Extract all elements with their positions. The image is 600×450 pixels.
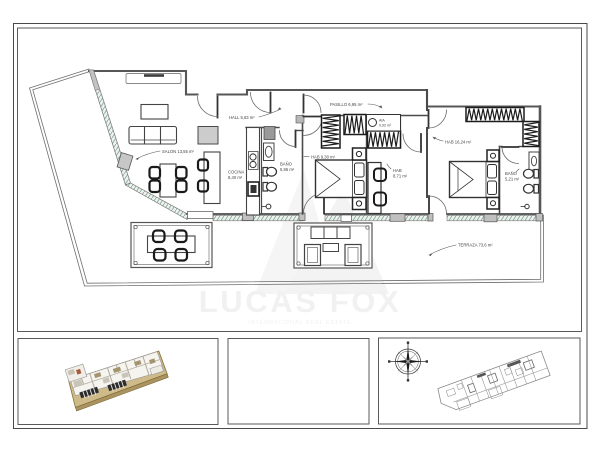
svg-text:5,21 m²: 5,21 m² (505, 177, 520, 182)
svg-text:HALL 5,63 m²: HALL 5,63 m² (229, 115, 255, 120)
svg-text:HAB 16,24 m²: HAB 16,24 m² (445, 140, 472, 145)
svg-text:HAB 9,30 m²: HAB 9,30 m² (311, 155, 336, 160)
svg-text:8,40 m²: 8,40 m² (228, 175, 243, 180)
svg-text:COCINA: COCINA (228, 170, 244, 175)
svg-text:AIA: AIA (379, 119, 385, 123)
svg-text:TERRAZA 73,6 m²: TERRAZA 73,6 m² (458, 243, 493, 248)
svg-text:SALON 13,55 m²: SALON 13,55 m² (162, 149, 194, 154)
svg-text:LUCAS FOX: LUCAS FOX (199, 284, 402, 319)
svg-text:0,92 m²: 0,92 m² (379, 124, 392, 128)
svg-text:BAÑO: BAÑO (280, 162, 293, 167)
svg-text:HAB: HAB (393, 168, 402, 173)
svg-text:BAÑO: BAÑO (505, 171, 518, 176)
svg-text:5,96 m²: 5,96 m² (280, 167, 295, 172)
svg-text:8,71 m²: 8,71 m² (393, 174, 408, 179)
svg-text:INTERNATIONAL REAL ESTATE: INTERNATIONAL REAL ESTATE (248, 320, 352, 326)
svg-text:PASILLO 6,95 m²: PASILLO 6,95 m² (330, 102, 363, 107)
